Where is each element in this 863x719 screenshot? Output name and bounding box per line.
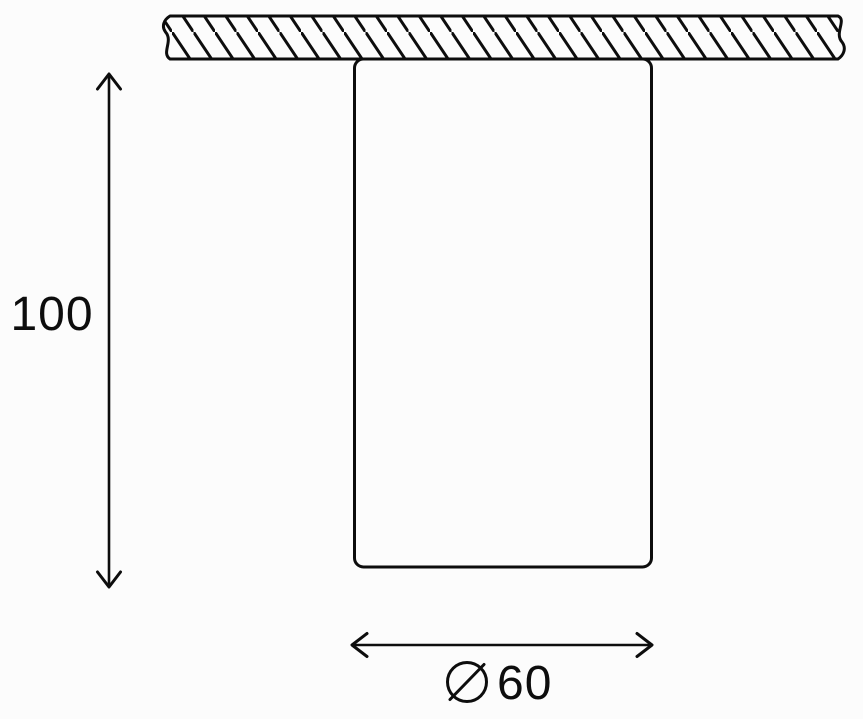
mounting-surface — [163, 16, 844, 59]
diameter-dimension — [352, 634, 652, 657]
height-dimension-label: 100 — [10, 288, 93, 341]
technical-drawing: 100 60 — [0, 0, 863, 719]
diameter-dimension-label: 60 — [497, 657, 552, 710]
fixture-body — [355, 59, 652, 567]
height-dimension — [98, 74, 121, 587]
diameter-symbol-slash — [450, 665, 484, 700]
dimension-drawing-svg: 100 60 — [0, 0, 863, 719]
diameter-symbol-icon — [448, 663, 487, 702]
